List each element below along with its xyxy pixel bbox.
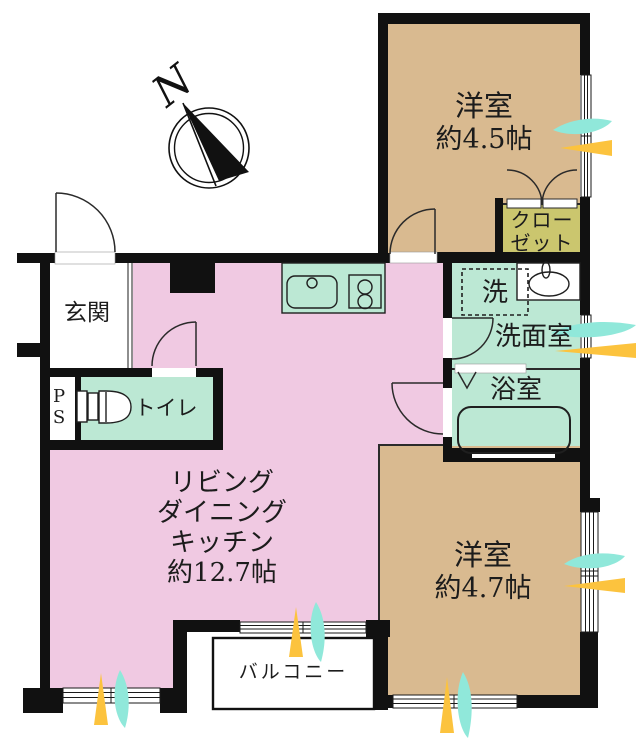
window-bedroom47-south bbox=[393, 695, 517, 708]
compass-north-label: N bbox=[142, 54, 203, 117]
compass: N bbox=[142, 54, 249, 188]
bathroom-label: 浴室 bbox=[453, 376, 579, 406]
washer-label: 洗 bbox=[462, 279, 528, 309]
ldk-floor-lower bbox=[50, 622, 173, 688]
bath-slide-opening bbox=[455, 364, 526, 373]
kitchen-counter bbox=[282, 263, 385, 313]
toilet-door-opening bbox=[152, 368, 196, 377]
ps-label-line2: S bbox=[49, 407, 69, 428]
window-ldk-balcony bbox=[240, 622, 366, 633]
ps-label: P S bbox=[49, 386, 69, 428]
toilet-label: トイレ bbox=[114, 396, 218, 420]
closet-label-line1: クロー bbox=[502, 209, 582, 232]
bedroom-47-label: 洋室 bbox=[403, 539, 563, 572]
ldk-label-line4: 約12.7帖 bbox=[122, 558, 322, 588]
entrance-label: 玄関 bbox=[47, 300, 127, 326]
closet-label: クロー ゼット bbox=[502, 209, 582, 255]
ldk-label-line3: キッチン bbox=[122, 528, 322, 558]
ldk-label-line1: リビング bbox=[122, 468, 322, 498]
entrance-door bbox=[56, 193, 115, 252]
entrance-door-opening bbox=[55, 252, 115, 264]
ldk-label: リビング ダイニング キッチン 約12.7帖 bbox=[122, 468, 322, 588]
bedroom-45-label: 洋室 bbox=[404, 90, 564, 123]
entrance-step-lines bbox=[128, 263, 132, 368]
washroom-label: 洗面室 bbox=[467, 323, 601, 353]
window-bedroom47-east bbox=[581, 512, 598, 632]
bedroom-45-size: 約4.5帖 bbox=[404, 124, 564, 155]
pillar bbox=[170, 263, 215, 293]
floor-plan: N 洋室 約4.5帖 クロー ゼット 洗 洗面室 浴室 洋室 約4.7帖 リビン… bbox=[0, 0, 639, 750]
window-bedroom45-east bbox=[581, 75, 591, 197]
bedroom45-door-opening bbox=[390, 252, 437, 263]
bathroom-door-opening bbox=[443, 388, 452, 437]
washroom-door-opening bbox=[443, 318, 452, 358]
balcony-label: バルコニー bbox=[213, 662, 374, 684]
bedroom-47-size: 約4.7帖 bbox=[403, 573, 563, 604]
closet-label-line2: ゼット bbox=[502, 232, 582, 255]
window-ldk-south bbox=[63, 688, 160, 703]
ps-label-line1: P bbox=[49, 386, 69, 407]
ldk-label-line2: ダイニング bbox=[122, 498, 322, 528]
